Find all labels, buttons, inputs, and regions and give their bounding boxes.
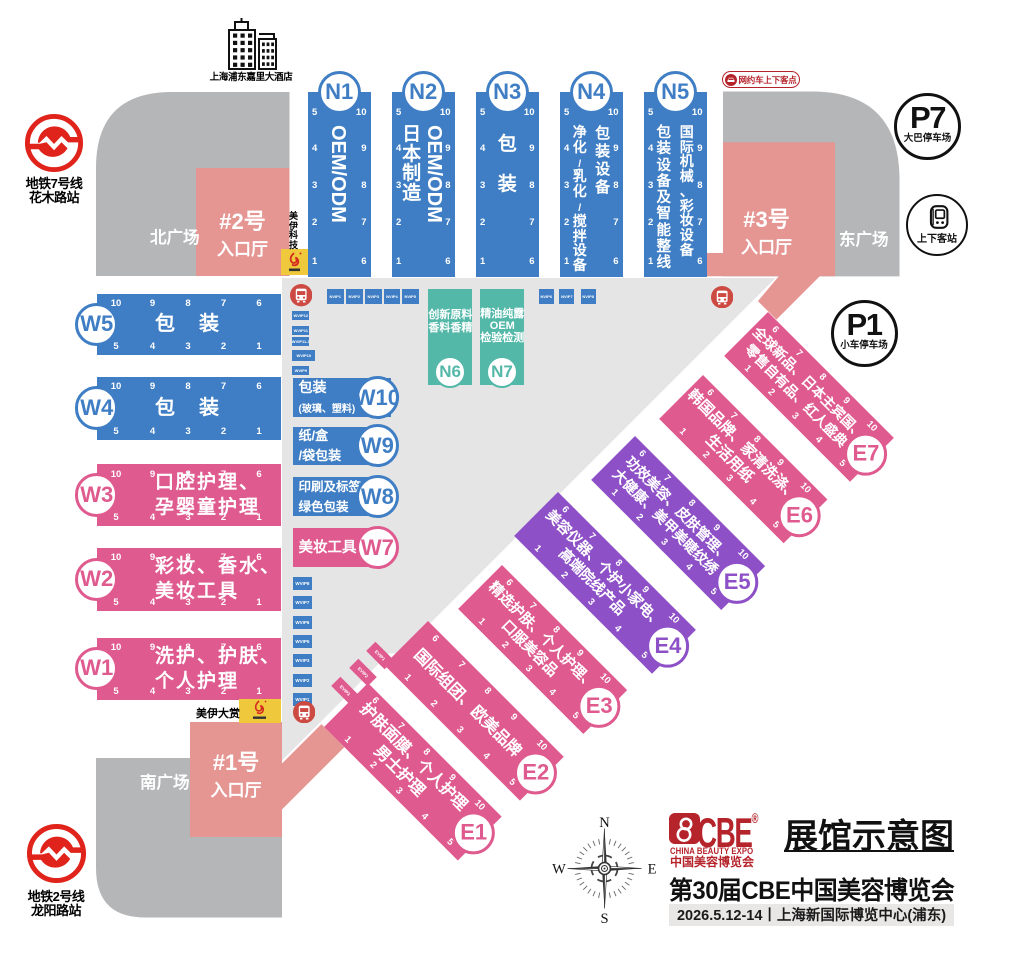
svg-text:E: E	[648, 862, 657, 878]
svg-text:W: W	[552, 862, 566, 878]
svg-text:S: S	[600, 911, 608, 927]
svg-text:N: N	[599, 815, 610, 831]
